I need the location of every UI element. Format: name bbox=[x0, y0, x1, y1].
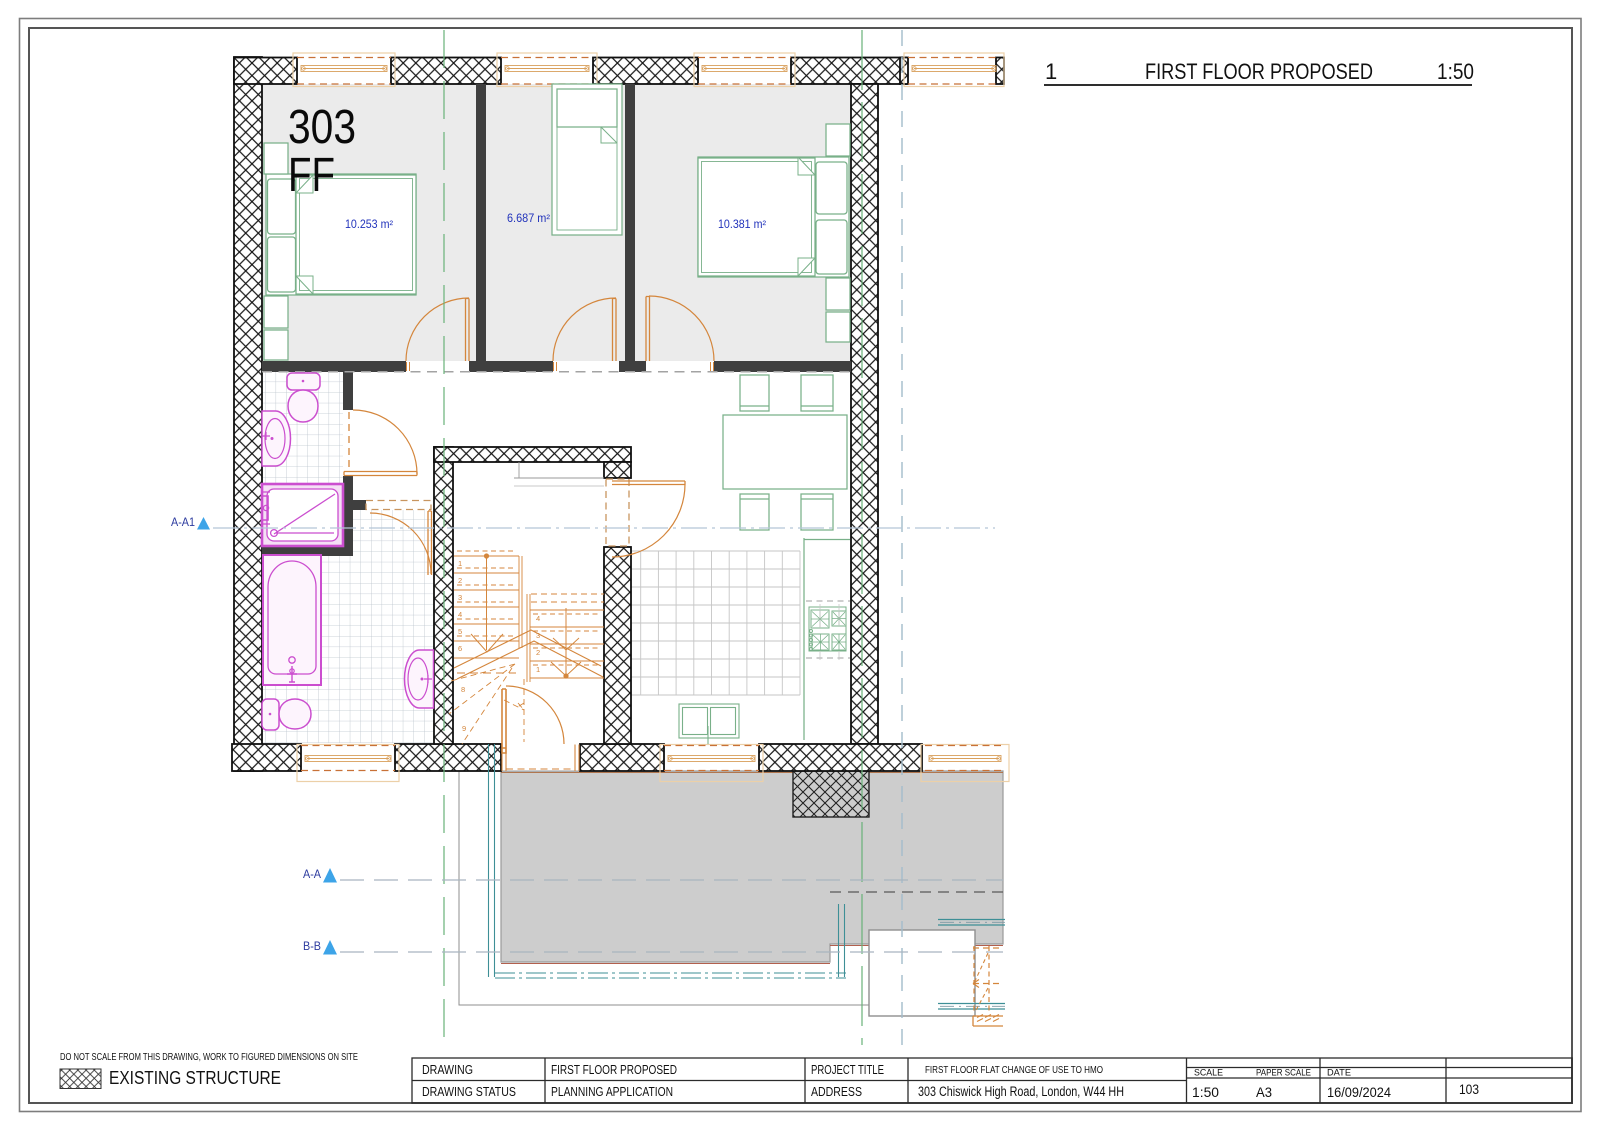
svg-text:8: 8 bbox=[461, 685, 465, 694]
svg-text:303 Chiswick High Road, London: 303 Chiswick High Road, London, W44 HH bbox=[918, 1084, 1124, 1099]
svg-text:4: 4 bbox=[536, 614, 540, 623]
svg-text:303: 303 bbox=[288, 101, 356, 154]
svg-text:4: 4 bbox=[458, 610, 462, 619]
svg-text:2: 2 bbox=[536, 648, 540, 657]
svg-text:PLANNING APPLICATION: PLANNING APPLICATION bbox=[551, 1084, 673, 1099]
svg-text:1: 1 bbox=[1045, 59, 1057, 84]
svg-text:1: 1 bbox=[536, 665, 540, 674]
svg-text:FIRST FLOOR FLAT CHANGE OF USE: FIRST FLOOR FLAT CHANGE OF USE TO HMO bbox=[925, 1064, 1103, 1076]
svg-text:3: 3 bbox=[536, 631, 540, 640]
svg-text:103: 103 bbox=[1459, 1082, 1479, 1097]
svg-text:1:50: 1:50 bbox=[1192, 1085, 1219, 1100]
svg-text:6: 6 bbox=[458, 644, 462, 653]
svg-text:PAPER SCALE: PAPER SCALE bbox=[1256, 1068, 1311, 1078]
svg-text:2: 2 bbox=[458, 576, 462, 585]
svg-text:FF: FF bbox=[288, 149, 335, 202]
svg-text:9: 9 bbox=[462, 724, 466, 733]
svg-text:ADDRESS: ADDRESS bbox=[811, 1084, 862, 1099]
svg-text:1: 1 bbox=[458, 559, 462, 568]
svg-text:A-A1: A-A1 bbox=[171, 517, 195, 529]
svg-text:B-B: B-B bbox=[303, 941, 321, 953]
svg-text:A-A: A-A bbox=[303, 869, 321, 881]
svg-text:16/09/2024: 16/09/2024 bbox=[1327, 1085, 1391, 1100]
svg-text:DATE: DATE bbox=[1327, 1068, 1351, 1078]
svg-text:3: 3 bbox=[458, 593, 462, 602]
svg-text:SCALE: SCALE bbox=[1194, 1068, 1223, 1078]
svg-text:DRAWING: DRAWING bbox=[422, 1062, 473, 1077]
svg-text:EXISTING STRUCTURE: EXISTING STRUCTURE bbox=[109, 1068, 281, 1088]
svg-text:FIRST FLOOR PROPOSED: FIRST FLOOR PROPOSED bbox=[1145, 59, 1373, 84]
svg-text:1:50: 1:50 bbox=[1437, 59, 1474, 84]
svg-text:10.381 m²: 10.381 m² bbox=[718, 219, 766, 231]
svg-text:DRAWING STATUS: DRAWING STATUS bbox=[422, 1084, 516, 1099]
svg-text:DO NOT SCALE FROM THIS DRAWING: DO NOT SCALE FROM THIS DRAWING, WORK TO … bbox=[60, 1052, 358, 1063]
svg-text:5: 5 bbox=[458, 627, 462, 636]
svg-text:A3: A3 bbox=[1256, 1085, 1272, 1100]
svg-text:10.253 m²: 10.253 m² bbox=[345, 219, 393, 231]
svg-text:6.687 m²: 6.687 m² bbox=[507, 213, 550, 225]
svg-text:PROJECT TITLE: PROJECT TITLE bbox=[811, 1062, 884, 1077]
svg-text:FIRST FLOOR PROPOSED: FIRST FLOOR PROPOSED bbox=[551, 1062, 677, 1077]
